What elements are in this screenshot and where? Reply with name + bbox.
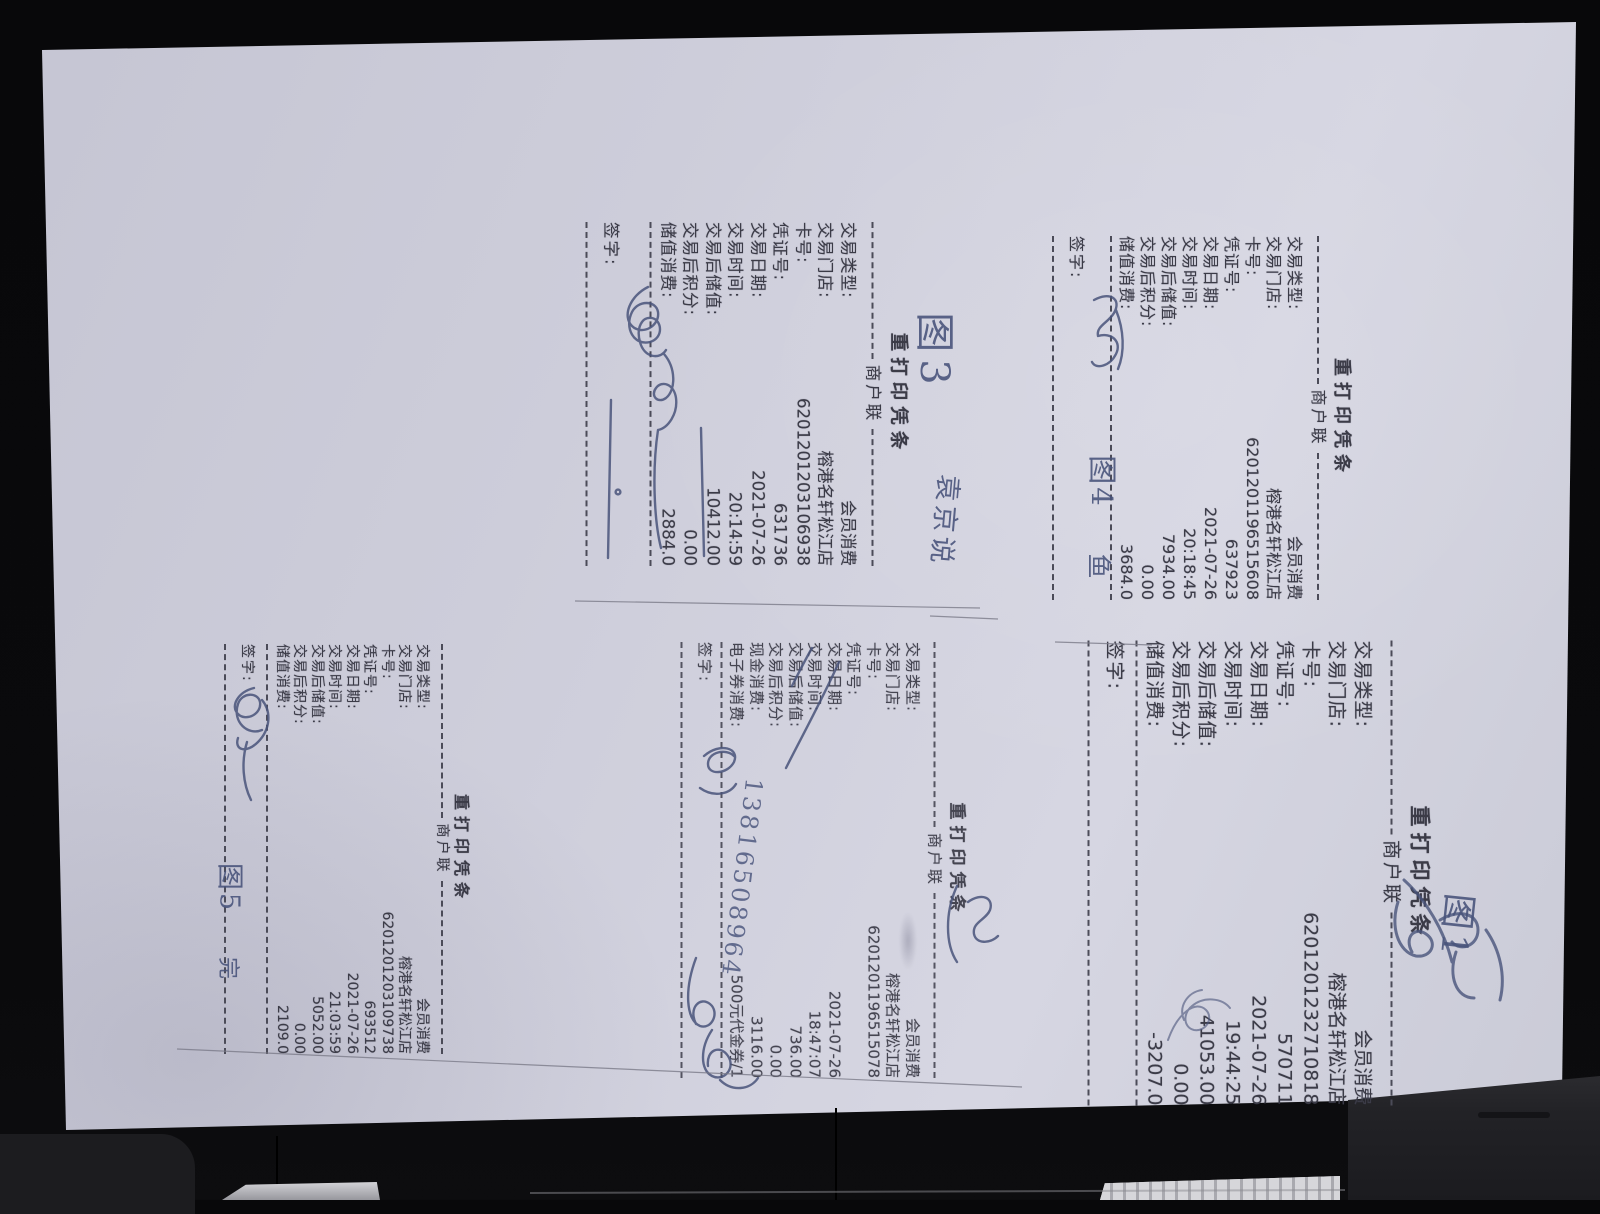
handwriting-overlay <box>0 0 1600 1200</box>
signature-scribble <box>608 287 704 558</box>
pencil-line <box>575 601 980 608</box>
signature-scribble <box>1092 296 1123 369</box>
signature-scribble <box>235 688 269 800</box>
signature-scribble <box>786 648 839 768</box>
handwritten-figure-2-scribble <box>948 886 998 962</box>
signature-scribble <box>1168 990 1230 1040</box>
pencil-line <box>1055 642 1152 645</box>
desk-edge-highlight <box>530 1190 1345 1193</box>
photo-of-receipt-sheet: { "labels": { "title": "重打印凭条", "copy": … <box>0 0 1600 1200</box>
pencil-line <box>930 616 998 619</box>
handwritten-name-scribble <box>1395 880 1502 1000</box>
signature-scribble <box>700 748 736 794</box>
signature-dot <box>616 490 621 495</box>
signature-scribble <box>688 958 758 1088</box>
pencil-line <box>177 1049 1022 1087</box>
